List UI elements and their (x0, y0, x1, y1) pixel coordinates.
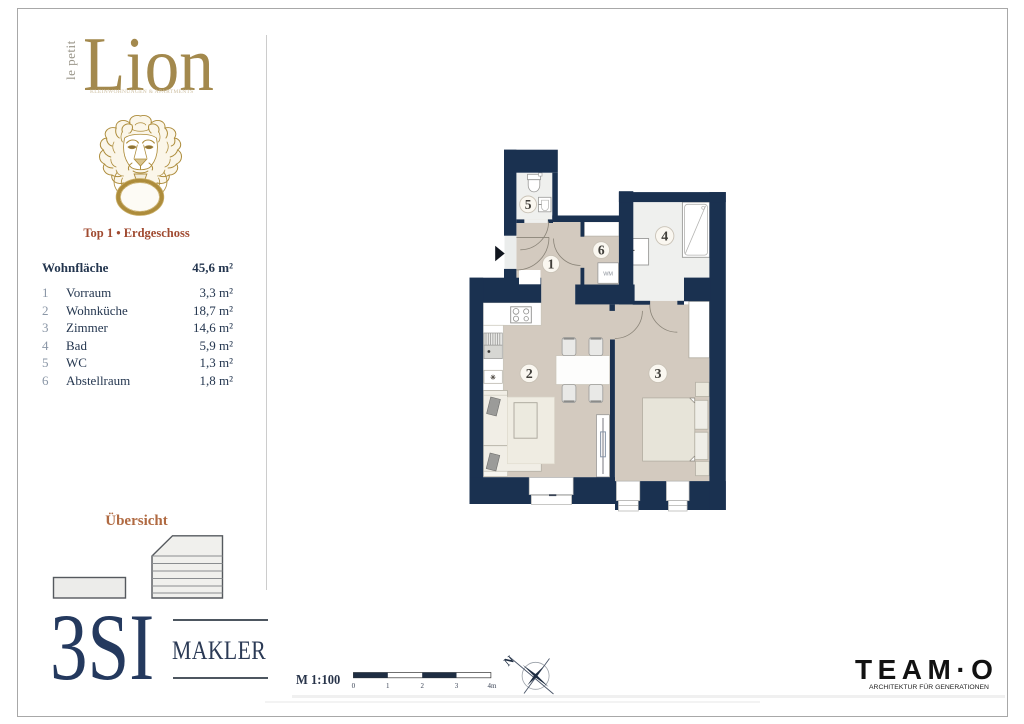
svg-text:4m: 4m (488, 682, 498, 690)
svg-text:2: 2 (526, 367, 533, 382)
svg-text:1: 1 (386, 682, 390, 690)
svg-text:2: 2 (420, 682, 424, 690)
svg-text:4: 4 (661, 230, 668, 245)
svg-text:0: 0 (352, 682, 356, 690)
svg-text:5: 5 (525, 197, 532, 212)
svg-text:3: 3 (655, 367, 662, 382)
svg-text:6: 6 (598, 243, 605, 258)
svg-text:WM: WM (603, 271, 613, 277)
svg-text:1: 1 (548, 257, 555, 272)
svg-text:3: 3 (455, 682, 459, 690)
